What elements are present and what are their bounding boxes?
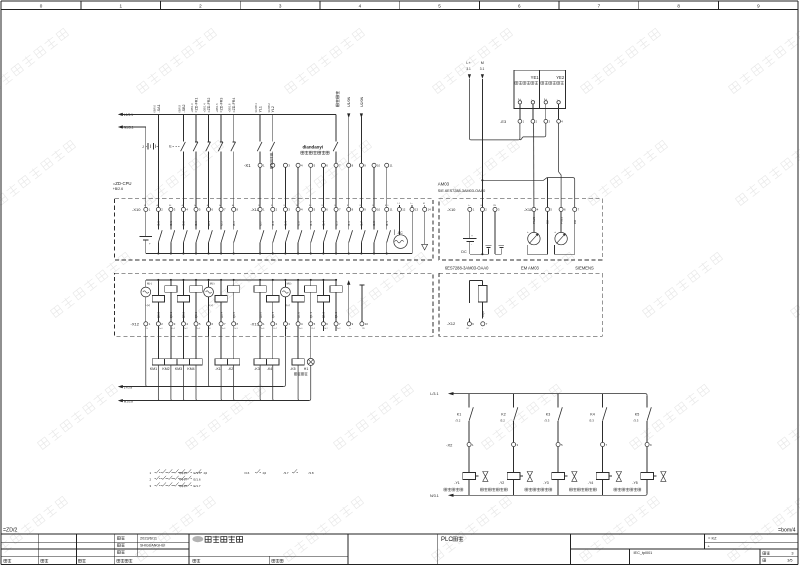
svg-text:Yb.2: Yb.2 <box>324 328 328 330</box>
svg-text:-SB2: -SB2 <box>182 105 186 113</box>
svg-text:4|4|4|4: 4|4|4|4 <box>179 471 187 475</box>
svg-text:KM1: KM1 <box>150 367 157 371</box>
svg-text:8: 8 <box>677 3 680 8</box>
svg-text:5: 5 <box>438 3 441 8</box>
svg-text:4|4|4|4: 4|4|4|4 <box>179 477 187 481</box>
svg-text:3C/4B.2: 3C/4B.2 <box>267 103 271 113</box>
svg-text:4|4: 4|4 <box>263 471 267 475</box>
svg-text:=bom/4: =bom/4 <box>778 528 796 534</box>
svg-text:-X10: -X10 <box>132 207 141 212</box>
svg-text:A0: A0 <box>157 204 159 207</box>
svg-text:=ZD-FR4: =ZD-FR4 <box>232 98 236 113</box>
svg-text:Ya.2: Ya.2 <box>184 328 188 330</box>
svg-text:-X12: -X12 <box>131 321 140 326</box>
svg-text:Q0.2: Q0.2 <box>182 312 186 319</box>
svg-text:Q1.2: Q1.2 <box>322 312 326 319</box>
svg-text:L/3.1: L/3.1 <box>430 392 438 396</box>
svg-text:/3.3: /3.3 <box>545 419 550 423</box>
svg-text:Ya.5: Ya.5 <box>234 328 238 330</box>
svg-text:K5: K5 <box>635 413 639 417</box>
svg-text:U2/0N: U2/0N <box>360 96 364 107</box>
svg-text:M: M <box>481 61 484 65</box>
svg-text:/3.6: /3.6 <box>244 471 249 475</box>
svg-text:KM2: KM2 <box>162 367 169 371</box>
svg-text:14: 14 <box>428 208 432 212</box>
svg-text:A2: A2 <box>182 204 184 207</box>
svg-text:-SA1: -SA1 <box>157 105 161 113</box>
svg-text:M(-): M(-) <box>287 282 292 286</box>
svg-text:+B/2.6: +B/2.6 <box>113 187 123 191</box>
svg-text:-K5: -K5 <box>290 367 296 371</box>
svg-text:A5: A5 <box>219 204 221 207</box>
svg-text:L(+): L(+) <box>208 303 213 307</box>
svg-text:B1: B1 <box>271 205 273 207</box>
svg-text:B0: B0 <box>258 205 260 207</box>
svg-text:-K2: -K2 <box>228 367 234 371</box>
svg-text:K2: K2 <box>501 413 505 417</box>
svg-text:Yb.1: Yb.1 <box>311 328 315 330</box>
svg-text:E/1.6: E/1.6 <box>194 477 201 481</box>
svg-text:L+/3.8: L+/3.8 <box>124 385 133 389</box>
svg-text:-X12: -X12 <box>447 321 456 326</box>
svg-text:L1/3.1: L1/3.1 <box>124 113 133 117</box>
svg-text:-X2: -X2 <box>446 442 453 447</box>
svg-text:1: 1 <box>119 3 122 8</box>
svg-text:= KZ: = KZ <box>708 536 717 541</box>
svg-text:11: 11 <box>390 164 393 168</box>
svg-text:9: 9 <box>757 3 760 8</box>
svg-text:AC: AC <box>398 231 403 235</box>
svg-text:3: 3 <box>279 3 282 8</box>
svg-text:0B/0.8: 0B/0.8 <box>177 104 181 112</box>
svg-text:0B/0.6: 0B/0.6 <box>152 104 156 112</box>
svg-text:4|4: 4|4 <box>204 471 208 475</box>
svg-text:-Y3: -Y3 <box>543 481 549 485</box>
svg-text:SHIGUANGHUI: SHIGUANGHUI <box>140 544 165 548</box>
svg-text:6ES7288-3AM03-OAA0: 6ES7288-3AM03-OAA0 <box>445 265 489 270</box>
svg-text:7: 7 <box>598 3 601 8</box>
svg-text:PLC: PLC <box>441 537 453 543</box>
svg-text:/3.8: /3.8 <box>309 471 314 475</box>
svg-text:Ya.1: Ya.1 <box>171 328 175 330</box>
svg-text:KM3: KM3 <box>175 367 182 371</box>
svg-text:=ZD-CPU: =ZD-CPU <box>113 181 132 186</box>
svg-text:A6: A6 <box>232 204 234 207</box>
svg-text:10: 10 <box>365 322 369 326</box>
svg-text:3.1: 3.1 <box>480 67 485 71</box>
svg-text:-K4: -K4 <box>267 367 273 371</box>
svg-text:/3.3: /3.3 <box>634 419 639 423</box>
svg-text:diandaoyi: diandaoyi <box>303 145 324 150</box>
svg-text:Ya.6: Ya.6 <box>261 328 265 330</box>
svg-text:3/5: 3/5 <box>787 559 792 563</box>
svg-text:KM4: KM4 <box>187 367 194 371</box>
svg-text:-E3: -E3 <box>500 119 506 124</box>
svg-text:=ZD-FR3: =ZD-FR3 <box>220 98 224 113</box>
svg-text:L+: L+ <box>544 97 547 101</box>
svg-text:K1: K1 <box>457 413 461 417</box>
svg-text:/3.7: /3.7 <box>284 471 289 475</box>
svg-text:Q0.0: Q0.0 <box>157 312 161 319</box>
svg-text:-Y1: -Y1 <box>454 481 460 485</box>
svg-text:11: 11 <box>390 208 393 212</box>
svg-text:J: J <box>142 145 144 149</box>
svg-text:-: - <box>531 98 532 101</box>
svg-text:-Y5: -Y5 <box>632 481 638 485</box>
svg-text:Ya.3: Ya.3 <box>196 328 200 330</box>
svg-text:-: - <box>471 243 472 246</box>
svg-text:YL2: YL2 <box>271 106 275 112</box>
svg-text:Yb.3: Yb.3 <box>336 328 340 330</box>
svg-text:H1: H1 <box>304 367 309 371</box>
svg-text:/3.2: /3.2 <box>500 419 505 423</box>
svg-text:IEC_tpl001: IEC_tpl001 <box>634 551 653 555</box>
svg-text:YE1: YE1 <box>531 75 540 80</box>
svg-text:Q1.3: Q1.3 <box>334 312 338 319</box>
svg-text:=ZD/2: =ZD/2 <box>3 528 17 534</box>
svg-text:L+: L+ <box>518 97 521 101</box>
svg-text:Q1.1: Q1.1 <box>309 312 313 319</box>
svg-text:L+: L+ <box>466 61 470 65</box>
svg-text:-K3: -K3 <box>254 367 260 371</box>
svg-text:+3B/1.5: +3B/1.5 <box>215 103 219 113</box>
svg-text:B3: B3 <box>296 205 298 207</box>
svg-text:/3.2: /3.2 <box>456 419 461 423</box>
svg-text:K3: K3 <box>546 413 550 417</box>
svg-text:-X10: -X10 <box>447 207 456 212</box>
svg-text:12: 12 <box>402 208 406 212</box>
svg-text:Q1.0: Q1.0 <box>296 312 300 319</box>
svg-text:/3.3: /3.3 <box>589 419 594 423</box>
svg-text:K4: K4 <box>590 413 594 417</box>
svg-text:B9: B9 <box>372 205 374 207</box>
svg-text:Yb.0: Yb.0 <box>298 328 302 330</box>
svg-text:6: 6 <box>518 3 521 8</box>
svg-text:-X11: -X11 <box>524 207 533 212</box>
svg-text:2: 2 <box>199 3 202 8</box>
svg-text:-Y2: -Y2 <box>499 481 505 485</box>
svg-text:Q0.4: Q0.4 <box>219 312 223 319</box>
svg-text:Q0.3: Q0.3 <box>194 312 198 319</box>
svg-text:A3: A3 <box>194 204 196 207</box>
svg-text:B10: B10 <box>385 205 388 207</box>
svg-text:B7: B7 <box>347 205 349 207</box>
svg-text:EM AM03: EM AM03 <box>521 265 539 270</box>
svg-text:Q0.5: Q0.5 <box>232 312 236 319</box>
svg-text:-K1: -K1 <box>215 367 221 371</box>
svg-text:M(-): M(-) <box>210 282 215 286</box>
svg-text:B4: B4 <box>309 205 311 207</box>
svg-text:4|4|4|4: 4|4|4|4 <box>179 484 187 488</box>
svg-text:+3B/1.4: +3B/1.4 <box>203 103 207 113</box>
svg-text:YE2: YE2 <box>556 75 565 80</box>
svg-text:-: - <box>557 98 558 101</box>
svg-text:B8: B8 <box>360 205 362 207</box>
svg-text:10: 10 <box>377 164 381 168</box>
svg-text:3.1: 3.1 <box>466 67 471 71</box>
svg-text:L(+): L(+) <box>285 303 290 307</box>
svg-text:M: M <box>467 328 469 330</box>
svg-text:M1/3.8: M1/3.8 <box>124 399 134 403</box>
svg-text:=ZD-FR1: =ZD-FR1 <box>194 98 198 113</box>
svg-text:SIEMENS: SIEMENS <box>575 265 594 270</box>
svg-text:YL1: YL1 <box>259 106 263 112</box>
svg-text:A1: A1 <box>169 204 171 207</box>
svg-text:=ZD-FR2: =ZD-FR2 <box>207 98 211 113</box>
svg-text:N/3.1: N/3.1 <box>430 494 439 498</box>
svg-text:10: 10 <box>377 208 381 212</box>
svg-text:B2: B2 <box>284 205 286 207</box>
svg-text:13: 13 <box>415 208 419 212</box>
svg-text:2023/6/11: 2023/6/11 <box>140 536 157 541</box>
svg-text:B5: B5 <box>322 205 324 207</box>
svg-text:Q0.7: Q0.7 <box>271 312 275 319</box>
svg-text:L(+): L(+) <box>145 303 150 307</box>
svg-text:SIE.6ES7288-3AM03-OAA0: SIE.6ES7288-3AM03-OAA0 <box>438 189 486 193</box>
svg-text:N1/3.1: N1/3.1 <box>124 126 134 130</box>
svg-text:AQ0: AQ0 <box>481 311 485 317</box>
svg-text:4: 4 <box>359 3 362 8</box>
svg-text:AM03: AM03 <box>438 181 450 186</box>
svg-text:DC: DC <box>461 250 467 254</box>
svg-text:3: 3 <box>791 552 793 556</box>
svg-text:+3B/1.6: +3B/1.6 <box>228 103 232 113</box>
svg-text:U1/0N: U1/0N <box>347 96 351 107</box>
svg-text:E/1.7: E/1.7 <box>194 484 201 488</box>
svg-text:-Y4: -Y4 <box>588 481 594 485</box>
svg-text:A4: A4 <box>207 204 209 207</box>
svg-text:+3B/1.3: +3B/1.3 <box>190 103 194 113</box>
svg-text:Ya.7: Ya.7 <box>273 328 277 330</box>
svg-text:3C/4B.1: 3C/4B.1 <box>254 103 258 113</box>
svg-text:Ya.0: Ya.0 <box>159 328 163 330</box>
svg-text:E/1.5: E/1.5 <box>194 471 201 475</box>
svg-text:M(-): M(-) <box>147 282 152 286</box>
svg-text:Ya.4: Ya.4 <box>222 328 226 330</box>
svg-text:Q0.1: Q0.1 <box>169 312 173 319</box>
svg-text:-X1: -X1 <box>244 163 251 168</box>
svg-text:M: M <box>423 203 425 205</box>
svg-text:B6: B6 <box>334 205 336 207</box>
svg-text:0: 0 <box>40 3 43 8</box>
svg-text:Q0.6: Q0.6 <box>258 312 262 319</box>
